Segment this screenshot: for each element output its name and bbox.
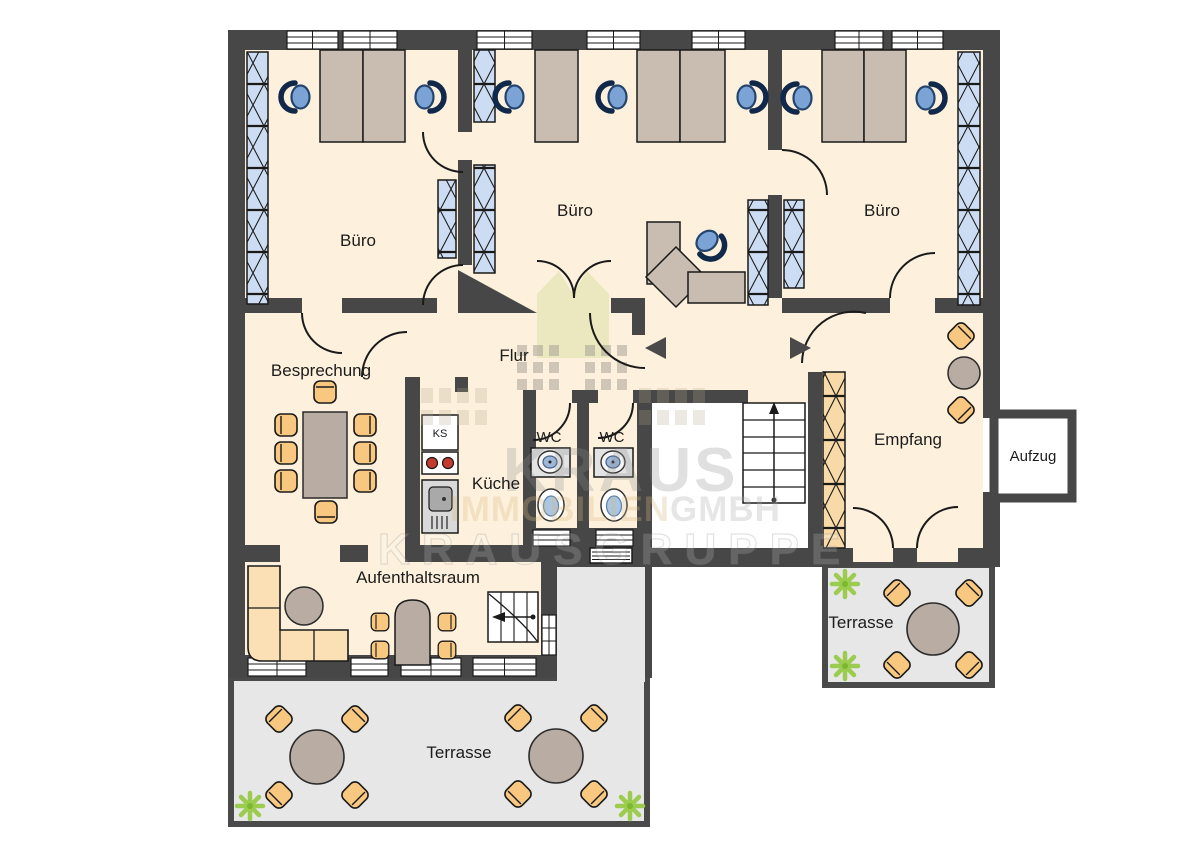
window-wc1-south — [533, 530, 570, 546]
chair-symbol — [354, 442, 376, 464]
wall-hall-c — [611, 298, 645, 313]
winder-staircase — [488, 592, 538, 642]
corner-desk-symbol — [688, 272, 745, 303]
chair-symbol — [438, 641, 456, 659]
chair-symbol — [354, 414, 376, 436]
desk-symbol — [363, 50, 405, 142]
chair-symbol — [314, 381, 336, 403]
burner-symbol — [443, 458, 454, 469]
wall-divider2-a — [768, 50, 782, 150]
cabinet — [474, 50, 495, 122]
label-meeting: Besprechung — [271, 361, 371, 380]
cabinet — [438, 180, 456, 258]
plant-symbol — [832, 571, 858, 597]
label-hallway: Flur — [499, 346, 529, 365]
label-wc-right: WC — [600, 429, 625, 446]
label-terrace-side: Terrasse — [828, 613, 893, 632]
label-elevator: Aufzug — [1010, 448, 1057, 465]
wall-right-upper — [983, 30, 1000, 418]
desk-symbol — [680, 50, 725, 142]
desk-symbol — [320, 50, 363, 142]
wall-divider2-b — [768, 195, 782, 298]
label-office-right: Büro — [864, 201, 900, 220]
round-table-symbol — [290, 730, 344, 784]
shelf-cabinet — [247, 52, 268, 304]
plant-symbol — [617, 793, 643, 819]
cabinet — [784, 200, 804, 288]
desk-symbol — [864, 50, 906, 142]
wall-lounge-north-b — [340, 545, 368, 562]
floorplan-canvas: KRAUS IMMOBILIENGMBH KRAUSGRUPPE Büro Bü… — [0, 0, 1200, 848]
chair-symbol — [315, 501, 337, 523]
round-table-symbol — [529, 729, 583, 783]
main-staircase — [743, 402, 805, 503]
conference-table-symbol — [303, 412, 347, 498]
sink-basin-symbol — [429, 487, 452, 511]
side-table-symbol — [948, 357, 980, 389]
plant-symbol — [832, 653, 858, 679]
desk-symbol — [535, 50, 578, 142]
window-wc2-south — [596, 530, 633, 546]
wall-reception-south-c — [958, 548, 1000, 567]
wall-reception-south-a — [808, 548, 853, 567]
wall-wc-divider — [577, 403, 589, 528]
cabinet — [748, 200, 768, 305]
chair-symbol — [275, 470, 297, 492]
wall-stairwell-north — [648, 390, 748, 403]
wall-divider1-b — [458, 160, 472, 265]
wall-reception-west — [808, 372, 822, 562]
wall-lounge-north-c — [412, 545, 541, 562]
wall-hall-stub — [632, 313, 645, 335]
coffee-table-symbol — [285, 587, 323, 625]
wall-wc-north-mid — [572, 390, 598, 403]
label-lounge: Aufenthaltsraum — [356, 568, 480, 587]
shelf-cabinet-orange — [823, 372, 845, 548]
chair-symbol — [438, 613, 456, 631]
desk-symbol — [822, 50, 864, 142]
chair-symbol — [371, 613, 389, 631]
chair-symbol — [371, 641, 389, 659]
label-reception: Empfang — [874, 430, 942, 449]
label-terrace-main: Terrasse — [426, 743, 491, 762]
wall-edge-strip — [645, 567, 652, 678]
floorplan-drawing: KRAUS IMMOBILIENGMBH KRAUSGRUPPE Büro Bü… — [0, 0, 1200, 848]
chair-symbol — [354, 470, 376, 492]
round-table-symbol — [907, 603, 959, 655]
wall-hall-d — [782, 298, 890, 313]
wall-divider1-a — [458, 50, 472, 132]
wall-stairwell-west — [637, 390, 652, 548]
label-kitchen-unit: KS — [433, 428, 448, 440]
wall-kitchen-north — [455, 377, 468, 392]
wall-left — [228, 30, 245, 675]
desk-symbol — [637, 50, 680, 142]
wall-kitchen-west — [405, 377, 420, 562]
wall-lounge-north-a — [245, 545, 280, 562]
label-wc-left: WC — [537, 429, 562, 446]
label-office-left: Büro — [340, 231, 376, 250]
wall-reception-south-b — [893, 548, 917, 567]
burner-symbol — [427, 458, 438, 469]
plant-symbol — [237, 793, 263, 819]
cabinet — [474, 165, 495, 273]
label-office-middle: Büro — [557, 201, 593, 220]
label-kitchen: Küche — [472, 474, 520, 493]
shelf-cabinet — [958, 52, 980, 305]
terrace-main-strip — [557, 567, 645, 682]
chair-symbol — [275, 442, 297, 464]
window-row-top — [287, 31, 943, 49]
chair-symbol — [275, 414, 297, 436]
lounge-table-symbol — [395, 600, 430, 665]
